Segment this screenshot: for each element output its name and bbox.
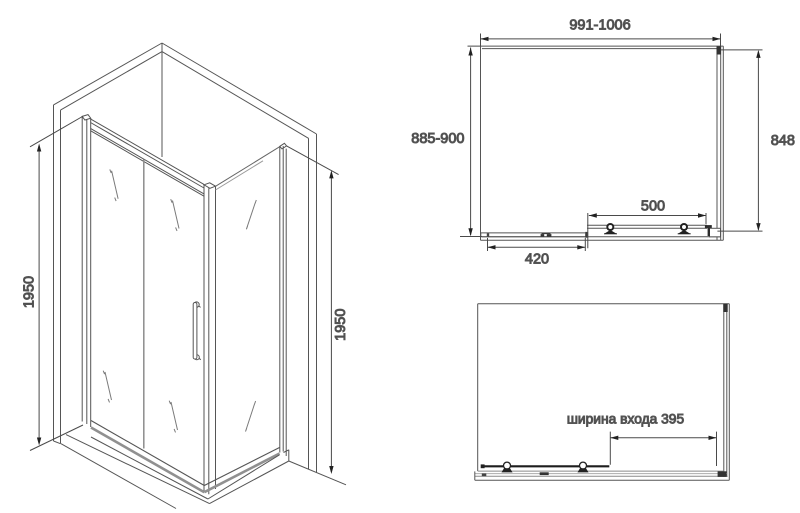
svg-text:1950: 1950	[22, 276, 38, 308]
svg-text:1950: 1950	[333, 309, 349, 341]
svg-text:885-900: 885-900	[411, 131, 464, 147]
svg-text:500: 500	[641, 199, 665, 215]
svg-text:420: 420	[525, 252, 549, 268]
svg-text:ширина входа 395: ширина входа 395	[567, 412, 685, 427]
svg-text:848: 848	[771, 133, 795, 149]
svg-text:991-1006: 991-1006	[569, 18, 630, 34]
